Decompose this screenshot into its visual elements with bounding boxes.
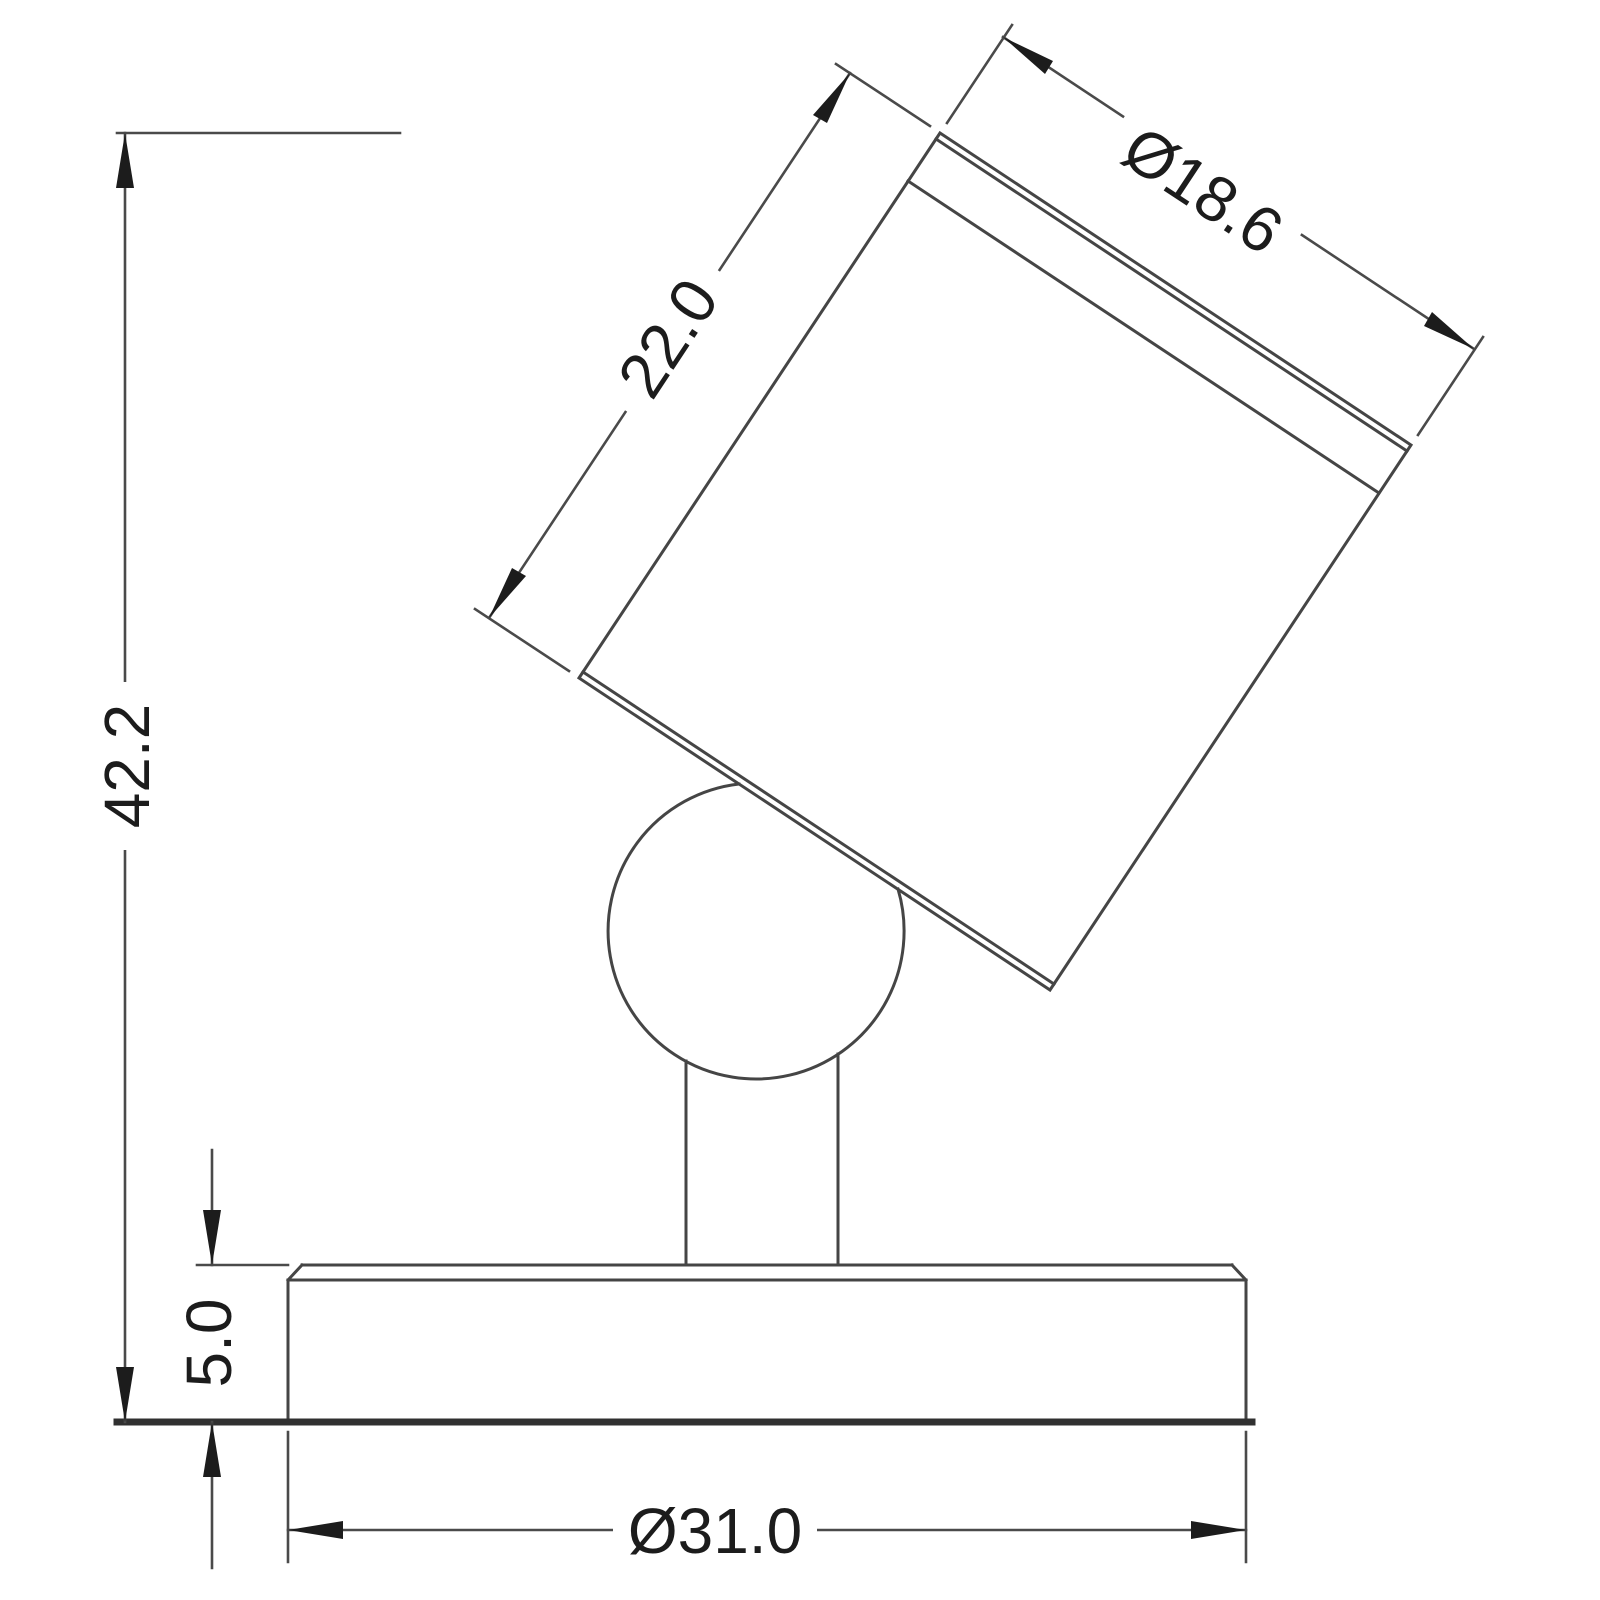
dimension-base-diameter-arrow-right-icon xyxy=(1191,1521,1246,1539)
dimension-base-diameter: Ø31.0 xyxy=(288,1432,1246,1568)
technical-drawing-page: 42.2 5.0 Ø31.0 22.0 xyxy=(0,0,1600,1600)
dimension-head-length-arrow-up-icon xyxy=(813,73,850,123)
lamp-head-lens-line xyxy=(908,181,1379,493)
dimension-base-thickness: 5.0 xyxy=(168,1150,288,1568)
dimension-total-height: 42.2 xyxy=(86,133,400,1422)
dimension-base-thickness-arrow-down-icon xyxy=(203,1210,221,1265)
base-top-right-chamfer xyxy=(1232,1265,1246,1280)
dimension-head-face-diameter: Ø18.6 xyxy=(947,25,1483,435)
stem xyxy=(686,1054,838,1265)
lamp-head-bottom-rim-line xyxy=(583,672,1054,984)
dimension-head-face-diameter-right-extension-line xyxy=(1418,337,1483,435)
dimension-head-face-diameter-arrow-upleft-icon xyxy=(1003,37,1053,74)
base-top-left-chamfer xyxy=(288,1265,302,1280)
base-plate xyxy=(117,1265,1252,1422)
dimension-head-face-diameter-left-extension-line xyxy=(947,25,1012,123)
dimension-total-height-arrow-down-icon xyxy=(116,1367,134,1422)
dimension-base-thickness-arrow-up-icon xyxy=(203,1422,221,1477)
dimension-total-height-label-group: 42.2 xyxy=(86,682,168,850)
dimension-head-face-diameter-label-group: Ø18.6 xyxy=(1093,99,1313,281)
spotlight-dimension-drawing: 42.2 5.0 Ø31.0 22.0 xyxy=(0,0,1600,1600)
ball-joint-arc xyxy=(608,784,904,1079)
dimension-head-face-diameter-arrow-downright-icon xyxy=(1424,312,1474,349)
dimension-head-length: 22.0 xyxy=(475,64,930,671)
dimension-base-diameter-arrow-left-icon xyxy=(288,1521,343,1539)
dimension-total-height-label: 42.2 xyxy=(91,704,163,829)
dimension-base-diameter-label: Ø31.0 xyxy=(628,1495,802,1567)
dimension-base-thickness-label-group: 5.0 xyxy=(168,1285,250,1401)
ball-joint xyxy=(608,784,904,1079)
dimension-base-thickness-label: 5.0 xyxy=(173,1299,245,1388)
dimension-head-face-diameter-label: Ø18.6 xyxy=(1110,112,1295,268)
dimension-head-length-label-group: 22.0 xyxy=(589,246,747,429)
dimension-total-height-arrow-up-icon xyxy=(116,133,134,188)
dimension-base-diameter-label-group: Ø31.0 xyxy=(613,1494,817,1568)
dimension-head-length-arrow-down-icon xyxy=(489,568,526,618)
